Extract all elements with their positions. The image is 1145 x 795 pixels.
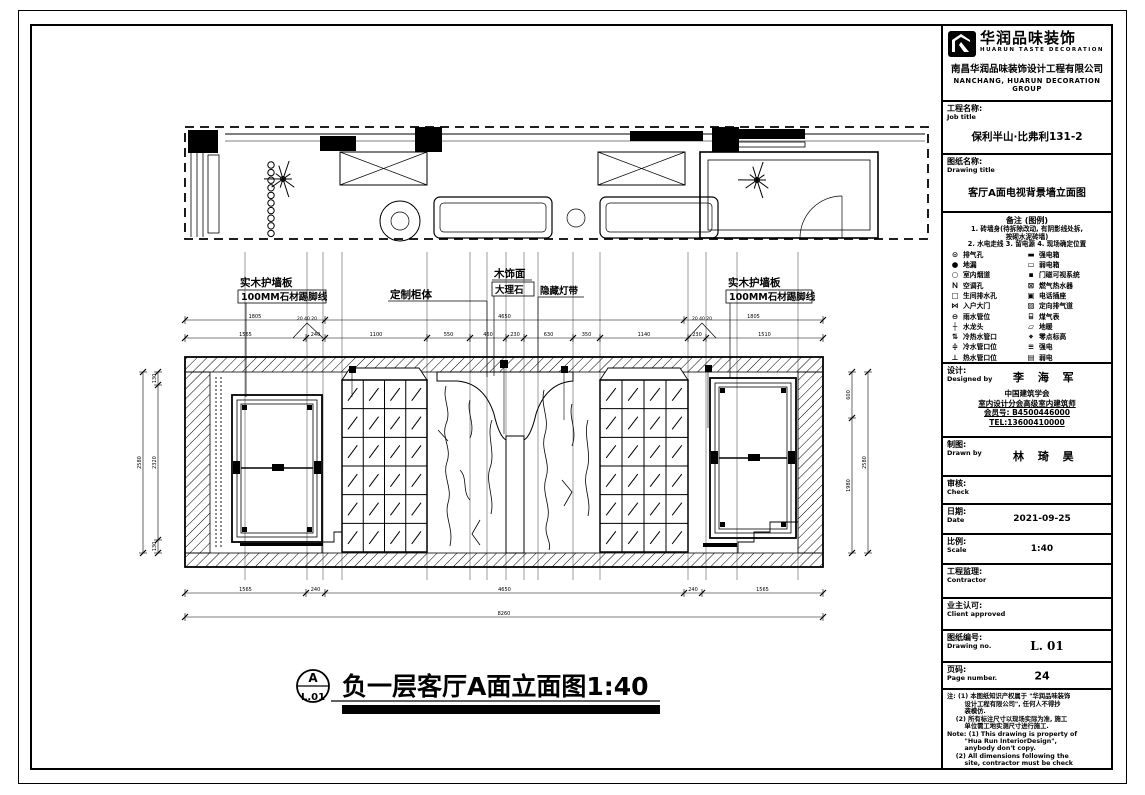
drawing-title-block: A L.01 负一层客厅A面立面图1:40 xyxy=(297,670,660,714)
plan-cabinet xyxy=(340,152,685,185)
dimension-text: 1980 xyxy=(846,479,852,492)
drawing-line xyxy=(390,503,399,516)
legend-row: ●地漏▭弱电箱 xyxy=(947,260,1107,270)
company-logo-icon xyxy=(947,30,977,58)
drawing-line xyxy=(650,474,660,487)
legend-label: 热水管口位 xyxy=(963,353,1023,363)
legend-symbol: ▨ xyxy=(1023,301,1039,311)
legend-symbol: ┼ xyxy=(947,322,963,332)
company-name-en: NANCHANG, HUARUN DECORATION GROUP xyxy=(947,77,1107,93)
plan-column xyxy=(188,130,218,153)
drawing-line xyxy=(268,207,274,213)
legend-symbol: ⊙ xyxy=(947,250,963,260)
drawing-line xyxy=(390,445,399,458)
note-line: site, contractor must be check xyxy=(947,760,1107,767)
legend-label: 入户大门 xyxy=(963,301,1023,311)
drawing-line xyxy=(369,417,378,430)
legend-label: 生间排水孔 xyxy=(963,291,1023,301)
designer-member-no: 会员号: B4500446000 xyxy=(947,408,1107,418)
legend-row: ⊥热水管口位▤弱电 xyxy=(947,353,1107,363)
title-underline-bar xyxy=(342,705,660,714)
drawing-line xyxy=(412,388,421,401)
designer-name: 李 海 军 xyxy=(1013,369,1079,385)
legend-row: □生间排水孔▣电话插座 xyxy=(947,291,1107,301)
legend-symbol: ▭ xyxy=(1023,260,1039,270)
legend-symbol: ● xyxy=(947,260,963,270)
callout-marble: 大理石 xyxy=(495,284,524,296)
drawing-line xyxy=(268,169,274,175)
dimension-text: 2320 xyxy=(152,456,158,469)
titleblock-drawing: 图纸名称: Drawing title 客厅A面电视背景墙立面图 xyxy=(943,155,1111,213)
drawing-line xyxy=(268,200,274,206)
drawing-line xyxy=(348,417,357,430)
legend-symbol: □ xyxy=(947,291,963,301)
designer-org2: 室内设计分会高级室内建筑师 xyxy=(947,399,1107,409)
legend-rows: ⊙排气孔▬强电箱●地漏▭弱电箱○室内烟道▪门磁可视系统Ｎ空调孔⊠燃气热水器□生间… xyxy=(947,250,1107,363)
dimension-text: 1510 xyxy=(758,332,771,338)
drawing-line xyxy=(268,230,274,236)
legend-label: 地漏 xyxy=(963,260,1023,270)
note-line: 袭模仿. xyxy=(947,708,1107,715)
legend-symbol: ○ xyxy=(947,270,963,280)
callout-right-wall-panel: 实木护墙板 xyxy=(728,276,781,289)
callout-hidden-light: 隐藏灯带 xyxy=(540,285,579,297)
legend-symbol: ⇅ xyxy=(947,332,963,342)
drawing-line xyxy=(412,445,421,458)
titleblock-client: 业主认可: Client approved xyxy=(943,599,1111,631)
drawing-line xyxy=(412,417,421,430)
drawing-line xyxy=(369,531,378,544)
legend-row: ≑冷水管口位≡强电 xyxy=(947,342,1107,352)
drawing-line xyxy=(628,503,638,516)
dimension-text: 1100 xyxy=(370,332,383,338)
dimension-text: 630 xyxy=(544,332,554,338)
y-leader-right-text: 20 40 20 xyxy=(692,316,712,322)
legend-label: 冷热水管口 xyxy=(963,332,1023,342)
dimension-text: 8260 xyxy=(498,611,511,617)
drawing-line xyxy=(268,185,274,191)
drawing-line xyxy=(628,388,638,401)
drawing-line xyxy=(628,474,638,487)
titleblock: 华润品味装饰 HUARUN TASTE DECORATION 南昌华润品味装饰设… xyxy=(941,26,1111,768)
legend-row: ⇅冷热水管口⌖零点标高 xyxy=(947,332,1107,342)
dimension-text: 350 xyxy=(582,332,592,338)
drawing-line xyxy=(369,388,378,401)
drawing-title-value: 客厅A面电视背景墙立面图 xyxy=(947,184,1107,199)
drawing-line xyxy=(348,503,357,516)
section-marker-letter: A xyxy=(308,671,318,685)
legend-label: 室内烟道 xyxy=(963,270,1023,280)
legend-symbol: ≡ xyxy=(1023,342,1039,352)
page-value: 24 xyxy=(973,669,1111,682)
plan-column xyxy=(320,136,356,151)
legend-symbol: ⌖ xyxy=(1023,332,1039,342)
date-value: 2021-09-25 xyxy=(973,514,1111,524)
legend-label: 冷水管口位 xyxy=(963,342,1023,352)
drawing-line xyxy=(268,177,274,183)
drawing-line xyxy=(606,531,616,544)
dimension-text: 130 xyxy=(152,374,158,384)
legend-label: 燃气热水器 xyxy=(1039,281,1107,291)
titleblock-drawn: 制图: Drawn by 林 琦 昊 xyxy=(943,438,1111,478)
legend-label: 弱电 xyxy=(1039,353,1107,363)
dimension-text: 4650 xyxy=(498,314,511,320)
titleblock-notes: 注: (1) 本图纸知识产权属于 "华润品味装饰 设计工程有限公司", 任何人不… xyxy=(943,690,1111,768)
herringbone-arch xyxy=(437,372,573,553)
drawing-line xyxy=(650,417,660,430)
titleblock-scale: 比例: Scale 1:40 xyxy=(943,535,1111,565)
drawing-line xyxy=(369,445,378,458)
legend-label: 空调孔 xyxy=(963,281,1023,291)
dimension-text: 240 xyxy=(311,587,321,593)
callout-left-skirting: 100MM石材踢脚线 xyxy=(241,291,328,303)
check-label-cn: 审核: xyxy=(947,479,1107,488)
drawing-line xyxy=(412,531,421,544)
job-label-cn: 工程名称: xyxy=(947,104,1107,113)
drawing-line xyxy=(390,531,399,544)
left-framed-panel xyxy=(232,395,342,553)
drawing-line xyxy=(268,223,274,229)
dimension-text: 4650 xyxy=(498,587,511,593)
drawing-line xyxy=(628,445,638,458)
drawn-name: 林 琦 昊 xyxy=(1013,448,1079,464)
legend-note-3: 2. 水电走线 3. 留电源 4. 现场确定位置 xyxy=(947,241,1107,249)
right-framed-panel xyxy=(703,378,798,553)
dimension-text: 1565 xyxy=(756,587,769,593)
legend-label: 零点标高 xyxy=(1039,332,1107,342)
drawing-title-text: 负一层客厅A面立面图1:40 xyxy=(342,672,649,701)
right-wall-section xyxy=(798,372,823,553)
drawing-line xyxy=(672,531,682,544)
section-marker-sheet: L.01 xyxy=(301,692,325,703)
titleblock-logo: 华润品味装饰 HUARUN TASTE DECORATION 南昌华润品味装饰设… xyxy=(943,26,1111,102)
drawing-label-cn: 图纸名称: xyxy=(947,157,1107,166)
drawing-line xyxy=(606,474,616,487)
legend-label: 雨水管位 xyxy=(963,312,1023,322)
scale-value: 1:40 xyxy=(973,544,1111,554)
drawing-line xyxy=(348,474,357,487)
drawing-line xyxy=(390,417,399,430)
legend-symbol: ⌸ xyxy=(1023,312,1039,322)
drawing-line xyxy=(369,474,378,487)
dimension-text: 240 xyxy=(311,332,321,338)
drawing-line xyxy=(606,388,616,401)
drawing-line xyxy=(606,417,616,430)
legend-row: ┼水龙头▱地暖 xyxy=(947,322,1107,332)
legend-label: 强电箱 xyxy=(1039,250,1107,260)
contractor-label-cn: 工程监理: xyxy=(947,567,1107,576)
note-line: Note: (1) This drawing is property of xyxy=(947,731,1107,738)
legend-symbol: ⊖ xyxy=(947,312,963,322)
drawing-line xyxy=(606,445,616,458)
left-wall-section xyxy=(185,372,210,553)
drawing-line xyxy=(650,388,660,401)
drawing-line xyxy=(672,445,682,458)
callout-left-wall-panel: 实木护墙板 xyxy=(240,276,293,289)
dimension-text: 550 xyxy=(444,332,454,338)
note-line: "Hua Run InteriorDesign", xyxy=(947,738,1107,745)
titleblock-contractor: 工程监理: Contractor xyxy=(943,565,1111,599)
note-line: anybody don't copy. xyxy=(947,745,1107,752)
callout-right-skirting: 100MM石材踢脚线 xyxy=(729,291,816,303)
titleblock-drawing-no: 图纸编号: Drawing no. L. 01 xyxy=(943,631,1111,663)
legend-label: 弱电箱 xyxy=(1039,260,1107,270)
callout-wood-veneer: 木饰面 xyxy=(493,267,526,280)
callout-custom-cabinet: 定制柜体 xyxy=(389,288,432,301)
client-label-cn: 业主认可: xyxy=(947,601,1107,610)
drawing-line xyxy=(268,215,274,221)
legend-symbol: ▱ xyxy=(1023,322,1039,332)
designer-org1: 中国建筑学会 xyxy=(947,389,1107,399)
company-name-cn: 南昌华润品味装饰设计工程有限公司 xyxy=(947,61,1107,75)
drawing-line xyxy=(268,162,274,168)
note-line: (2) 所有标注尺寸以现场实际为准, 施工 xyxy=(947,716,1107,723)
job-title-value: 保利半山·比弗利131-2 xyxy=(947,129,1107,144)
drawing-sheet: 1565240110055046023063035011402301510180… xyxy=(0,0,1145,795)
legend-label: 电话插座 xyxy=(1039,291,1107,301)
drawing-line xyxy=(390,388,399,401)
legend-row: ⊖雨水管位⌸煤气表 xyxy=(947,312,1107,322)
check-label-en: Check xyxy=(947,488,1107,496)
dimension-text: 230 xyxy=(510,332,520,338)
brand-name-en: HUARUN TASTE DECORATION xyxy=(980,47,1104,53)
titleblock-legend: 备注 (图例) 1. 砖墙身(待拆除改动, 有阴影线处拆, 按砌水泥砖墙) 2.… xyxy=(943,213,1111,364)
contractor-label-en: Contractor xyxy=(947,576,1107,584)
legend-symbol: ⋈ xyxy=(947,301,963,311)
plan-side-room xyxy=(700,152,878,238)
drawing-line xyxy=(672,388,682,401)
legend-label: 地暖 xyxy=(1039,322,1107,332)
y-leader-left-text: 20 40 20 xyxy=(297,316,317,322)
plan-column xyxy=(415,127,442,152)
drawing-line xyxy=(348,388,357,401)
legend-symbol: ▤ xyxy=(1023,353,1039,363)
titleblock-date: 日期: Date 2021-09-25 xyxy=(943,505,1111,535)
note-line: 注: (1) 本图纸知识产权属于 "华润品味装饰 xyxy=(947,693,1107,700)
drawing-line xyxy=(672,474,682,487)
dimension-text: 1140 xyxy=(638,332,651,338)
dimension-text: 240 xyxy=(688,587,698,593)
dimension-text: 1805 xyxy=(747,314,760,320)
legend-label: 定向排气道 xyxy=(1039,301,1107,311)
legend-symbol: ⊥ xyxy=(947,353,963,363)
plan-sofa-group xyxy=(380,197,718,241)
legend-row: Ｎ空调孔⊠燃气热水器 xyxy=(947,281,1107,291)
elevation-view xyxy=(185,357,823,567)
legend-row: ○室内烟道▪门磁可视系统 xyxy=(947,270,1107,280)
drawing-line xyxy=(348,531,357,544)
legend-row: ⋈入户大门▨定向排气道 xyxy=(947,301,1107,311)
designer-tel: TEL:13600410000 xyxy=(947,418,1107,428)
legend-symbol: ≑ xyxy=(947,342,963,352)
legend-row: ⊙排气孔▬强电箱 xyxy=(947,250,1107,260)
drawing-line xyxy=(672,503,682,516)
dimension-text: 230 xyxy=(692,332,702,338)
dimension-text: 2580 xyxy=(862,456,868,469)
drawing-label-en: Drawing title xyxy=(947,166,1107,174)
drawing-line xyxy=(628,417,638,430)
note-line: 单位需工地实测尺寸进行施工. xyxy=(947,723,1107,730)
drawing-no-value: L. 01 xyxy=(983,639,1111,653)
notes-lines: 注: (1) 本图纸知识产权属于 "华润品味装饰 设计工程有限公司", 任何人不… xyxy=(947,692,1107,767)
floor-plan-view xyxy=(185,127,928,241)
drawing-line xyxy=(650,445,660,458)
drawing-line xyxy=(650,531,660,544)
legend-label: 煤气表 xyxy=(1039,312,1107,322)
titleblock-check: 审核: Check xyxy=(943,477,1111,505)
legend-symbol: ▪ xyxy=(1023,270,1039,280)
drawing-line xyxy=(412,474,421,487)
legend-label: 强电 xyxy=(1039,342,1107,352)
dimension-text: 460 xyxy=(483,332,493,338)
dimension-text: 600 xyxy=(846,390,852,400)
drawing-line xyxy=(628,531,638,544)
brand-name-cn: 华润品味装饰 xyxy=(980,30,1104,47)
floor-section-hatch xyxy=(185,553,823,567)
drawing-line xyxy=(348,445,357,458)
drawing-line xyxy=(390,474,399,487)
client-label-en: Client approved xyxy=(947,610,1107,618)
drawing-line xyxy=(606,503,616,516)
job-label-en: Job title xyxy=(947,113,1107,121)
legend-label: 水龙头 xyxy=(963,322,1023,332)
legend-symbol: Ｎ xyxy=(947,281,963,291)
legend-symbol: ▬ xyxy=(1023,250,1039,260)
dimension-text: 1565 xyxy=(239,332,252,338)
drawing-line xyxy=(369,503,378,516)
drawing-line xyxy=(412,503,421,516)
dimension-text: 1565 xyxy=(239,587,252,593)
titleblock-job: 工程名称: Job title 保利半山·比弗利131-2 xyxy=(943,102,1111,156)
dimension-text: 130 xyxy=(152,542,158,552)
drawing-line xyxy=(268,192,274,198)
dimension-text: 2580 xyxy=(137,456,143,469)
drawing-line xyxy=(672,417,682,430)
cad-drawing-canvas: 1565240110055046023063035011402301510180… xyxy=(0,0,941,795)
note-line: (2) All dimensions following the xyxy=(947,753,1107,760)
dimension-text: 1805 xyxy=(249,314,262,320)
legend-symbol: ▣ xyxy=(1023,291,1039,301)
legend-label: 门磁可视系统 xyxy=(1039,270,1107,280)
legend-label: 排气孔 xyxy=(963,250,1023,260)
titleblock-designed: 设计: Designed by 李 海 军 中国建筑学会 室内设计分会高级室内建… xyxy=(943,364,1111,438)
legend-symbol: ⊠ xyxy=(1023,281,1039,291)
drawing-line xyxy=(650,503,660,516)
titleblock-page: 页码: Page number. 24 xyxy=(943,663,1111,691)
